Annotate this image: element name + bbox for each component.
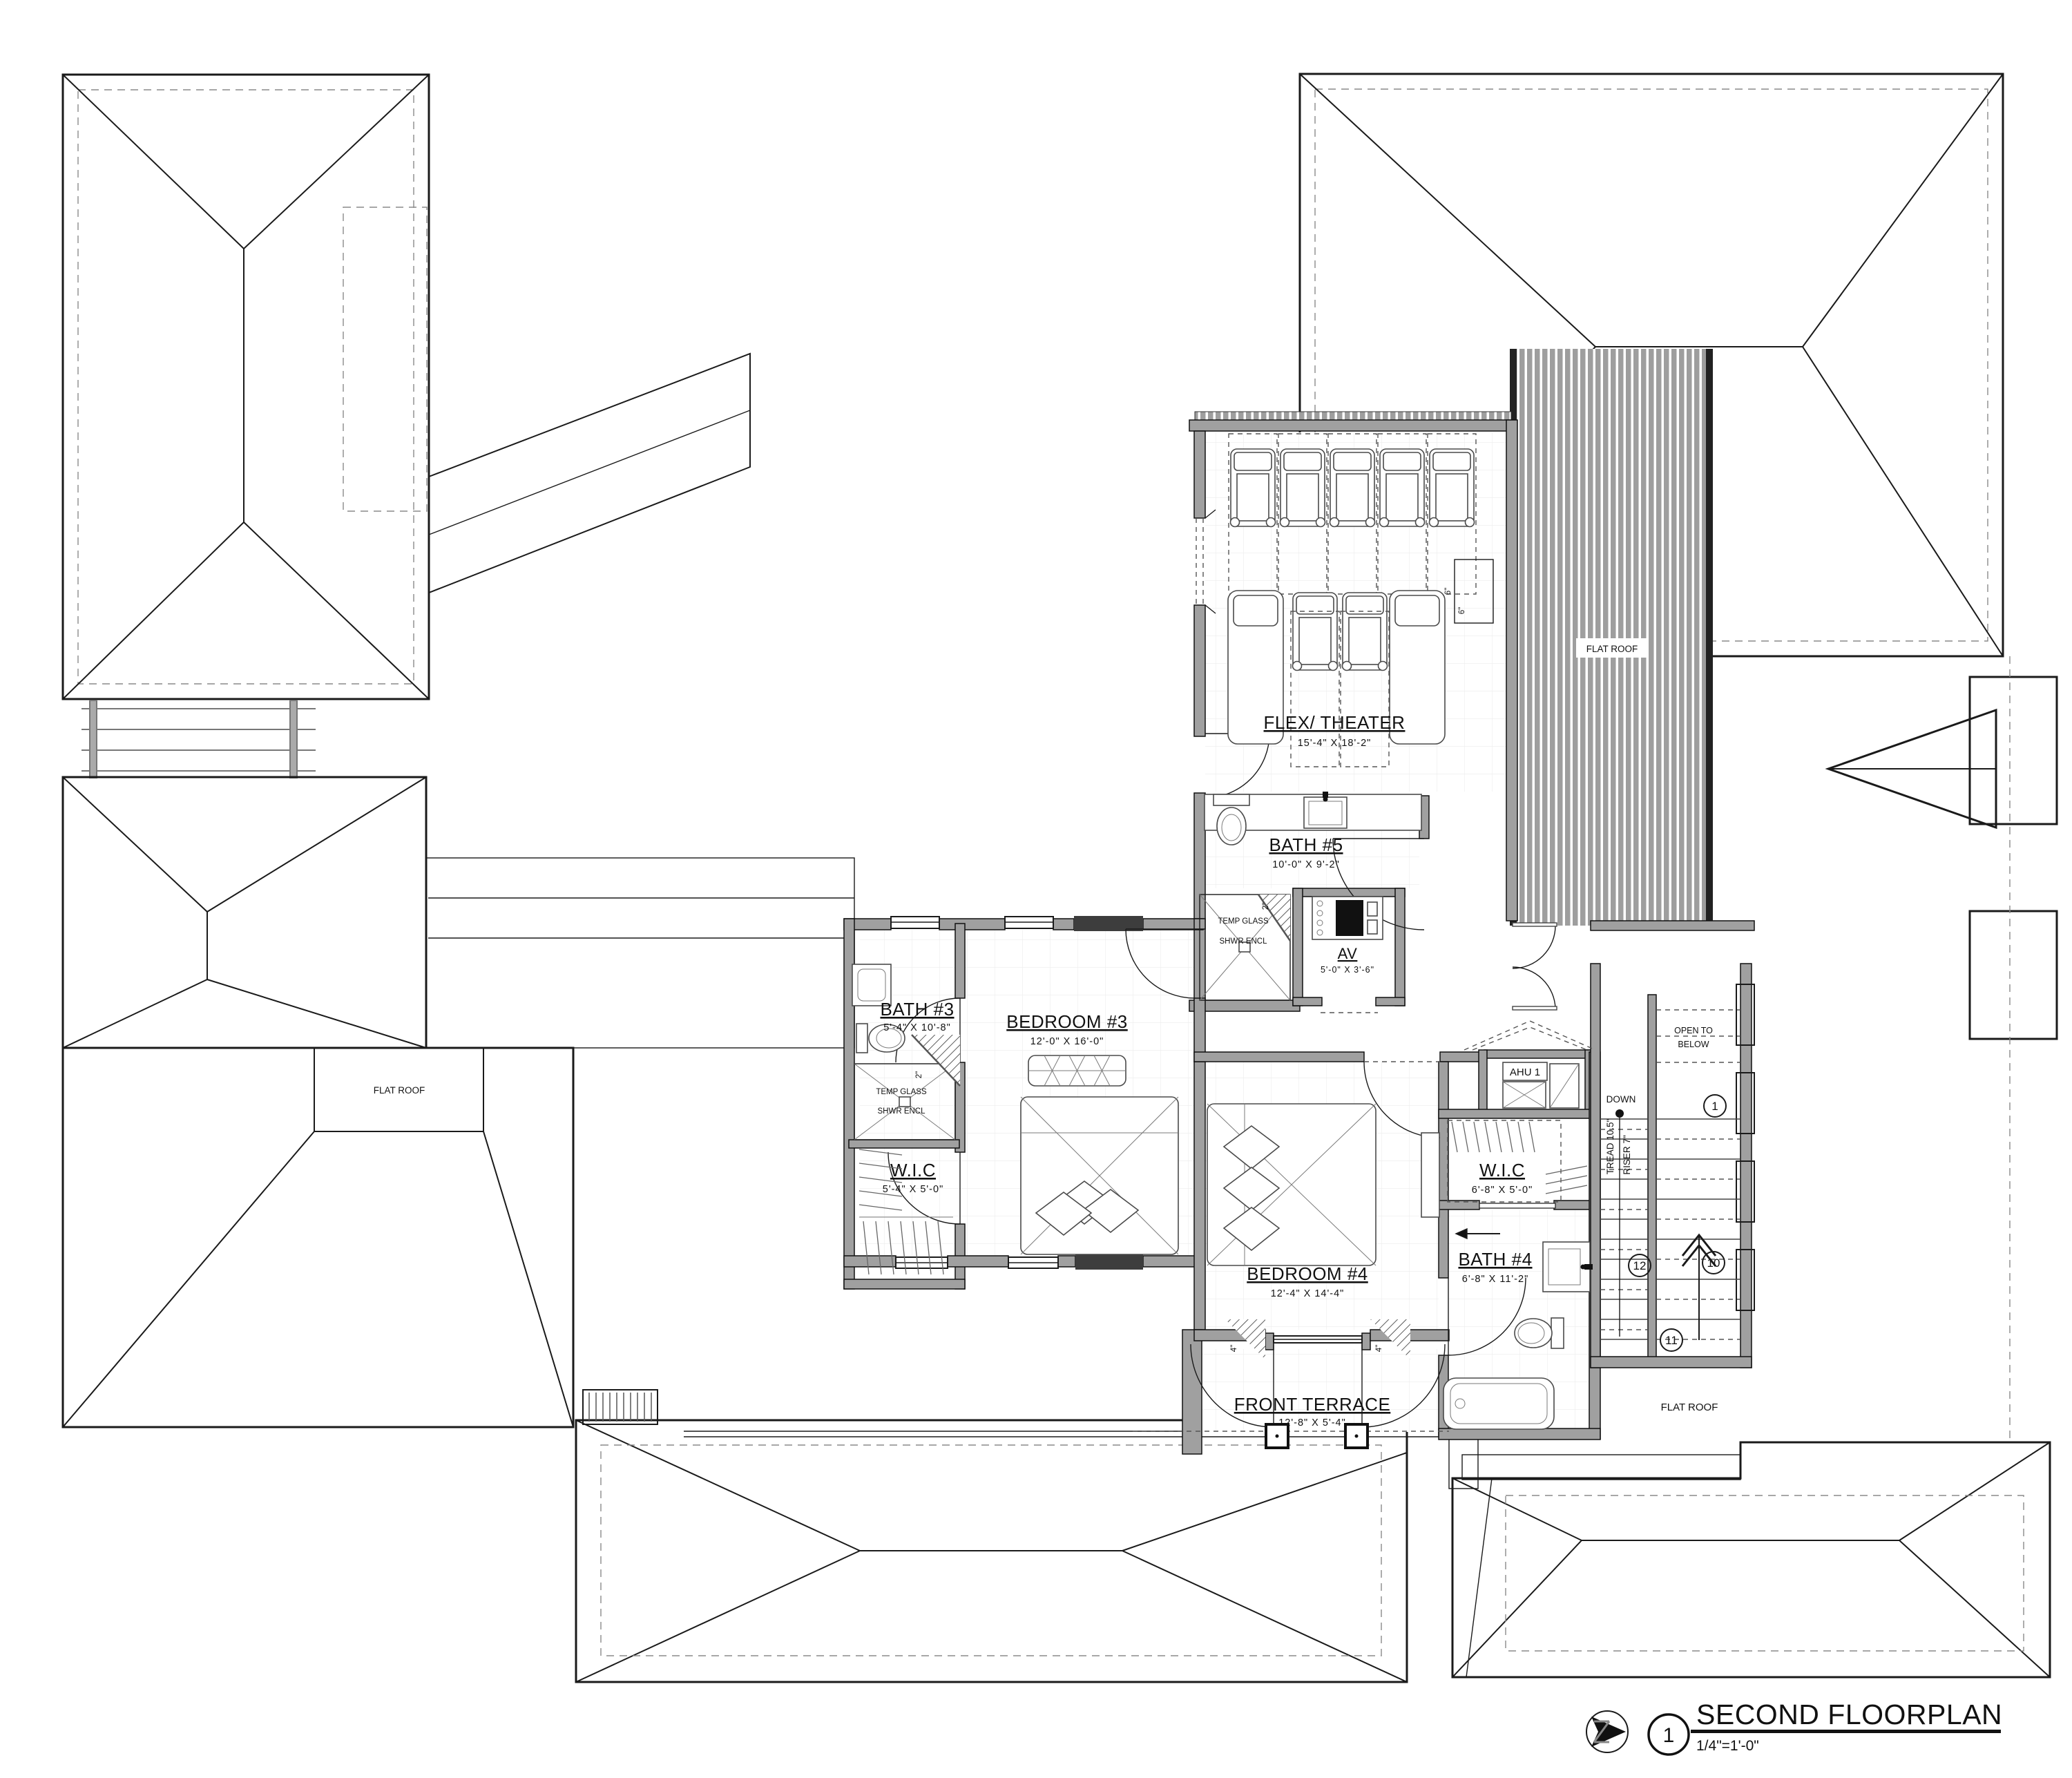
roof-bottom-center — [576, 1390, 1449, 1682]
tag-4in-b: 4" — [1375, 1345, 1383, 1352]
flex-theater-label: FLEX/ THEATER — [1264, 712, 1406, 733]
bedroom3-dims: 12'-0" X 16'-0" — [1030, 1036, 1104, 1047]
ahu-label: AHU 1 — [1510, 1067, 1540, 1078]
floorplan-sheet: FLAT ROOF — [0, 0, 2072, 1778]
av-label: AV — [1338, 945, 1358, 962]
flex-theater-dims: 15'-4" X 18'-2" — [1298, 738, 1372, 749]
down-label: DOWN — [1606, 1094, 1636, 1105]
title-block: 1 SECOND FLOORPLAN 1/4"=1'-0" — [1586, 1699, 2002, 1755]
flat-roof-br-label: FLAT ROOF — [1661, 1402, 1718, 1413]
bath3-dims: 5'-4" X 10'-8" — [883, 1022, 951, 1033]
bedroom4-dims: 12'-4" X 14'-4" — [1271, 1288, 1345, 1299]
tag-6in-a: 6" — [1444, 588, 1452, 595]
bath4-dims: 6'-8" X 11'-2" — [1462, 1274, 1528, 1285]
b5-shwr-encl: SHWR ENCL — [1219, 937, 1267, 946]
roof-left — [63, 777, 854, 1427]
marker-10: 10 — [1707, 1256, 1720, 1270]
b3-temp-glass: TEMP GLASS — [876, 1088, 927, 1096]
b3-shwr-encl: SHWR ENCL — [877, 1107, 925, 1116]
tag-4in-a: 4" — [1230, 1345, 1238, 1352]
marker-1: 1 — [1711, 1100, 1718, 1113]
front-terrace-label: FRONT TERRACE — [1234, 1394, 1391, 1415]
stair-markers: 1 12 10 11 — [1629, 1095, 1726, 1351]
roof-plan: FLAT ROOF — [63, 74, 2057, 1682]
bath5-label: BATH #5 — [1269, 834, 1343, 855]
detail-number: 1 — [1663, 1724, 1675, 1747]
floorplan-drawing: FLAT ROOF — [0, 0, 2072, 1778]
right-bays — [1828, 656, 2057, 1442]
tag-6in-b: 6" — [1458, 607, 1466, 614]
tread-label: TREAD 10.5" — [1605, 1119, 1615, 1175]
trellis — [81, 700, 316, 778]
av-dims: 5'-0" X 3'-6" — [1321, 965, 1374, 975]
wic-right-label: W.I.C — [1479, 1160, 1525, 1180]
roof-bottom-right — [1452, 1442, 2050, 1677]
north-arrow-icon — [1586, 1711, 1628, 1752]
roof-wing — [429, 354, 750, 593]
marker-11: 11 — [1665, 1334, 1678, 1347]
sheet-title: SECOND FLOORPLAN — [1696, 1699, 2002, 1730]
flat-roof-band-label: FLAT ROOF — [1586, 644, 1638, 654]
bath4-label: BATH #4 — [1458, 1249, 1532, 1270]
bath3-label: BATH #3 — [880, 999, 954, 1020]
wic-right-room: W.I.C 6'-8" X 5'-0" — [1448, 1120, 1587, 1202]
below-label: BELOW — [1678, 1040, 1709, 1049]
tag-2in-b5: 2" — [1262, 903, 1270, 910]
wic-right-dims: 6'-8" X 5'-0" — [1472, 1185, 1533, 1196]
flat-roof-left-label: FLAT ROOF — [374, 1085, 425, 1096]
marker-12: 12 — [1633, 1259, 1647, 1272]
tag-2in-b3: 2" — [915, 1071, 923, 1078]
bath5-dims: 10'-0" X 9'-2" — [1272, 859, 1340, 870]
riser-label: RISER 7" — [1622, 1135, 1632, 1175]
flat-roof-left: FLAT ROOF — [314, 1048, 483, 1131]
av-closet: AV 5'-0" X 3'-6" — [1312, 897, 1383, 1013]
wic-left-dims: 5'-4" X 5'-0" — [883, 1184, 943, 1195]
open-to-label: OPEN TO — [1674, 1026, 1713, 1035]
stairs: DOWN TREAD 10.5" RISER 7" 1 12 10 11 OPE… — [1600, 1010, 1740, 1351]
bedroom4-label: BEDROOM #4 — [1247, 1263, 1368, 1284]
bedroom3-label: BEDROOM #3 — [1006, 1011, 1128, 1032]
b5-temp-glass: TEMP GLASS — [1218, 917, 1269, 926]
sheet-scale: 1/4"=1'-0" — [1696, 1738, 1759, 1754]
wic-left-label: W.I.C — [890, 1160, 936, 1180]
roof-top-left — [63, 75, 429, 699]
